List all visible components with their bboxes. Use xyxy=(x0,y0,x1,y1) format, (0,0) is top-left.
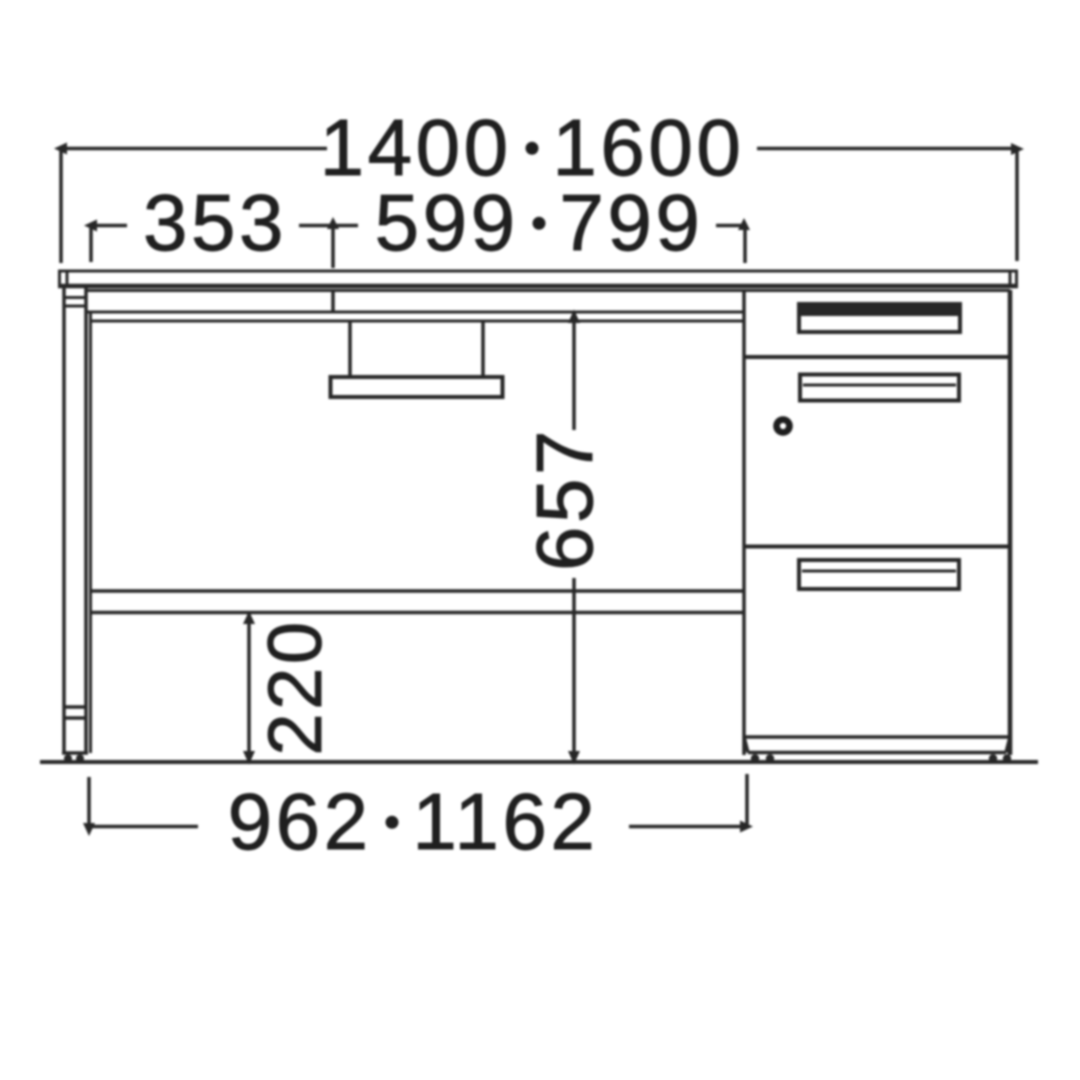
svg-text:657: 657 xyxy=(520,427,609,571)
svg-text:220: 220 xyxy=(253,618,338,755)
svg-text:353: 353 xyxy=(143,178,287,267)
svg-text:962·1162: 962·1162 xyxy=(228,756,599,881)
